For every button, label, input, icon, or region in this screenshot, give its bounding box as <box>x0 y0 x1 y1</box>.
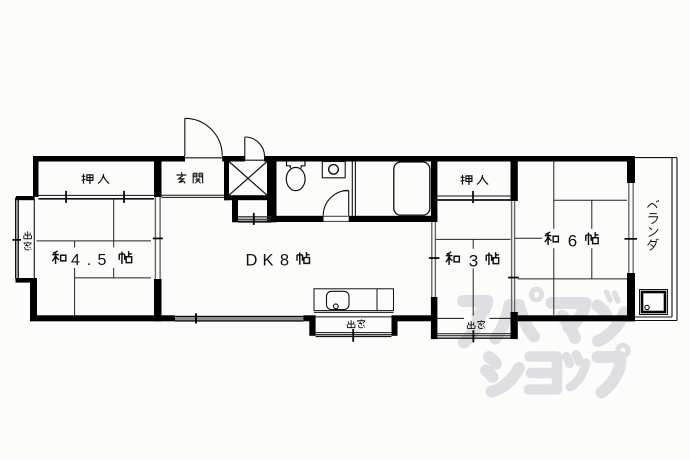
svg-text:4: 4 <box>71 252 80 269</box>
svg-text:3: 3 <box>469 252 478 271</box>
svg-text:K: K <box>262 251 273 269</box>
svg-text:D: D <box>246 251 258 269</box>
svg-text:.: . <box>87 252 91 269</box>
svg-text:8: 8 <box>280 251 289 269</box>
svg-text:5: 5 <box>98 252 107 269</box>
svg-text:6: 6 <box>568 232 577 251</box>
